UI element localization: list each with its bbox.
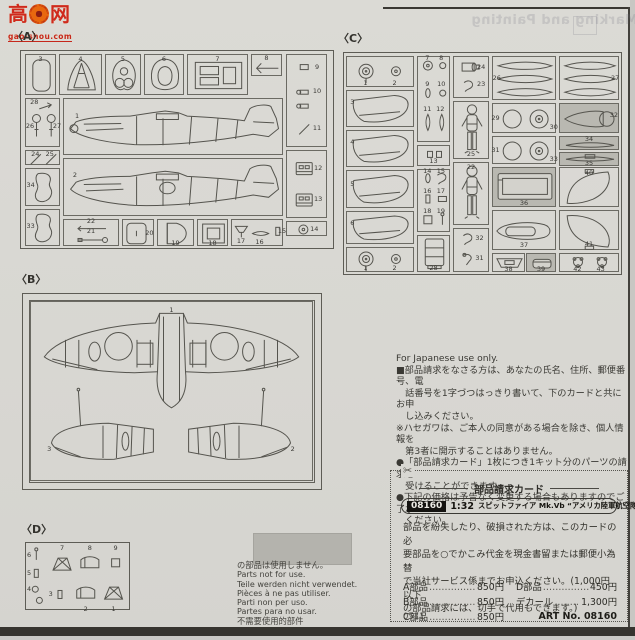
kit-id-badge: 08160 1:32 スピットファイア Mk.Vb “アメリカ陸軍航空隊”: [401, 498, 617, 514]
part-number: 35: [585, 160, 593, 167]
notice-line: ■部品請求をなさる方は、あなたの氏名、住所、郵便番号、電: [396, 365, 630, 388]
part-number: 18: [208, 239, 216, 246]
part-number: 33: [26, 223, 34, 230]
part-box: 2425: [25, 150, 60, 165]
art-number: ART No. 08160: [539, 611, 617, 622]
section-d-label: 〈D〉: [21, 521, 52, 537]
price-value: 1,300円: [581, 594, 617, 608]
price-leader: ……………………………………………: [543, 582, 589, 593]
part-number: 26: [26, 123, 34, 130]
part-box: 171615: [231, 219, 283, 246]
part-number: 19: [171, 239, 179, 246]
part-number: 43: [596, 266, 604, 273]
card-title: 部品請求カード: [391, 481, 627, 496]
price-label: A部品: [403, 579, 428, 593]
part-box: 6: [346, 211, 414, 244]
part-number: 3: [49, 591, 53, 598]
part-number: 5: [27, 570, 31, 577]
part-number: 4: [27, 586, 31, 593]
part-box: 3231: [453, 228, 489, 272]
price-leader: ……………………………………………: [429, 582, 476, 593]
part-number: 25: [46, 150, 54, 157]
unused-line: Parts not for use.: [237, 570, 367, 579]
part-number: 22: [87, 217, 95, 224]
part-number: 14: [423, 168, 431, 175]
part-number: 19: [437, 208, 445, 215]
part-number: 30: [550, 124, 558, 131]
section-b-label: 〈B〉: [16, 271, 46, 287]
price-label: B部品: [403, 594, 428, 608]
part-number: 9: [425, 81, 429, 88]
part-box: 35: [559, 152, 619, 166]
notice-line: 第3者に開示することはありません。: [396, 446, 630, 458]
part-number: 2: [392, 265, 396, 272]
part-box: 2423: [453, 56, 489, 98]
part-box: 4243: [559, 253, 619, 272]
card-body-line: 要部品を○でかこみ代金を現金書留または郵便小為替: [403, 548, 617, 575]
part-number: 18: [423, 208, 431, 215]
part-number: 3: [47, 446, 51, 453]
part-number: 37: [520, 242, 528, 249]
unused-line: Teile werden nicht verwendet.: [237, 580, 367, 589]
part-box: 5: [346, 170, 414, 208]
part-box: 91011: [286, 54, 327, 147]
part-box: 141516171819: [417, 169, 450, 232]
show-through-box: [573, 16, 597, 35]
part-number: 1: [111, 606, 115, 613]
part-number: 7: [60, 545, 64, 552]
price-value: 850円: [477, 579, 504, 593]
part-number: 34: [585, 136, 593, 143]
scan-bed-right: [630, 0, 635, 640]
part-number: 36: [520, 199, 528, 206]
part-number: 41: [585, 241, 593, 248]
part-number: 6: [162, 55, 166, 62]
kit-scale: 1:32: [450, 501, 474, 512]
part-number: 3: [350, 98, 354, 105]
price-leader: ……………………………………………: [554, 597, 580, 608]
scissors-icon: ✂: [401, 464, 414, 477]
parts-request-card: ✂ 部品請求カード 08160 1:32 スピットファイア Mk.Vb “アメリ…: [390, 470, 628, 622]
part-number: 1: [169, 307, 173, 314]
part-box: 34: [559, 136, 619, 150]
part-number: 14: [310, 225, 318, 232]
part-box: 37: [492, 210, 556, 250]
part-number: 38: [504, 265, 512, 272]
part-number: 2: [73, 171, 77, 178]
part-number: 9: [315, 64, 319, 71]
part-box: 6: [144, 54, 184, 95]
part-box: 4: [59, 54, 102, 95]
part-box: 36: [492, 167, 556, 207]
part-box: 32: [559, 103, 619, 133]
part-box: 654789321: [26, 543, 129, 609]
part-number: 22: [467, 163, 475, 170]
price-label: デカール: [516, 594, 553, 608]
part-number: 42: [573, 266, 581, 273]
part-number: 31: [491, 147, 499, 154]
part-number: 24: [31, 150, 39, 157]
part-box: 3: [346, 90, 414, 127]
part-number: 7: [215, 55, 219, 62]
price-leader: ……………………………………………: [429, 597, 476, 608]
part-box: 789101112: [417, 56, 450, 142]
unused-line: の部品は使用しません。: [237, 561, 367, 570]
part-box: 4: [346, 130, 414, 167]
part-number: 2: [84, 606, 88, 613]
part-number: 31: [475, 254, 483, 261]
show-through-text: Marking and Painting: [448, 13, 635, 28]
part-number: 17: [437, 188, 445, 195]
part-box: 39: [526, 253, 556, 272]
part-number: 1: [363, 265, 367, 272]
part-number: 32: [610, 112, 618, 119]
part-number: 7: [425, 55, 429, 62]
notice-line: し込みください。: [396, 411, 630, 423]
instruction-sheet-page: Marking and Painting 高 网 gao-shou.com 〈A…: [0, 0, 635, 640]
part-box: 282627: [25, 98, 60, 147]
part-number: 23: [477, 81, 485, 88]
part-number: 15: [278, 227, 286, 234]
part-number: 12: [314, 165, 322, 172]
part-number: 20: [145, 229, 153, 236]
part-number: 4: [350, 138, 354, 145]
part-number: 8: [439, 55, 443, 62]
unused-line: 不需要使用的部件: [237, 617, 367, 626]
watermark-char-right: 网: [50, 4, 70, 24]
page-edge-top: [383, 7, 630, 9]
part-number: 12: [436, 106, 444, 113]
part-number: 27: [611, 75, 619, 82]
part-number: 27: [53, 123, 61, 130]
part-number: 24: [477, 63, 485, 70]
part-number: 15: [437, 168, 445, 175]
part-box: 1213: [286, 150, 327, 218]
scan-bed-bottom: [0, 636, 635, 640]
sprue-b-diagram: 132: [22, 293, 322, 490]
part-number: 8: [88, 545, 92, 552]
price-value: 450円: [590, 579, 617, 593]
part-number: 10: [437, 81, 445, 88]
part-box: 2221: [63, 219, 119, 246]
part-box: 12: [346, 247, 414, 272]
part-number: 5: [121, 55, 125, 62]
part-box: 13: [417, 145, 450, 166]
gear-icon: [29, 4, 49, 24]
part-number: 28: [30, 99, 38, 106]
notice-line: For Japanese use only.: [396, 353, 630, 365]
part-number: 17: [237, 238, 245, 245]
card-footer: 0511 ART No. 08160: [403, 611, 617, 622]
part-number: 21: [87, 228, 95, 235]
part-box: 3133: [492, 136, 556, 164]
part-number: 4: [78, 55, 82, 62]
part-box: 3: [47, 416, 159, 476]
price-row: A部品……………………………………………850円 D部品…………………………………: [403, 579, 617, 594]
notice-line: 話番号を1字づつはっきり書いて、下のカードと共にお申: [396, 388, 630, 411]
unused-parts-note: の部品は使用しません。 Parts not for use. Teile wer…: [237, 561, 367, 626]
part-number: 40: [585, 169, 593, 176]
sprue-c-diagram: 1234561278910111213141516171819282423252…: [343, 52, 622, 275]
watermark-char-left: 高: [8, 4, 28, 24]
part-box: 41: [559, 210, 619, 250]
part-number: 1: [75, 112, 79, 119]
part-number: 2: [291, 446, 295, 453]
print-serial: 0511: [403, 612, 425, 622]
part-box: 8: [251, 54, 282, 76]
unused-line: Parti non per uso.: [237, 598, 367, 607]
part-box: 5: [105, 54, 141, 95]
part-number: 11: [423, 106, 431, 113]
part-box: 2: [63, 158, 283, 216]
part-box: 38: [492, 253, 525, 272]
part-box: 25: [453, 101, 489, 159]
part-number: 39: [537, 265, 545, 272]
part-number: 11: [313, 125, 321, 132]
part-number: 10: [313, 88, 321, 95]
section-c-label: 〈C〉: [338, 30, 368, 46]
part-box: 7: [187, 54, 248, 95]
kit-name: スピットファイア Mk.Vb “アメリカ陸軍航空隊”: [478, 501, 635, 511]
part-box: 2: [183, 416, 295, 476]
part-number: 13: [314, 195, 322, 202]
part-number: 16: [255, 239, 263, 246]
sprue-a-diagram: 3456789101112131428262724253433122221201…: [20, 50, 334, 249]
part-box: 26: [492, 56, 556, 100]
page-edge-bottom: [0, 627, 635, 636]
part-box: 2930: [492, 103, 556, 133]
part-number: 34: [26, 182, 34, 189]
part-number: 28: [429, 265, 437, 272]
part-box: 20: [122, 219, 154, 246]
part-box: 28: [417, 235, 450, 272]
part-box: 33: [25, 209, 60, 246]
part-box: 14: [286, 221, 327, 236]
part-box: 34: [25, 168, 60, 206]
part-box: 1: [63, 98, 283, 155]
part-box: 22: [453, 162, 489, 225]
card-title-text: 部品請求カード: [474, 481, 544, 496]
card-body-line: 部品を紛失したり、破損された方は、このカードの必: [403, 521, 617, 548]
part-number: 26: [493, 75, 501, 82]
sprue-d-diagram: 654789321: [25, 542, 130, 610]
notice-line: ※ハセガワは、ご本人の同意がある場合を除き、個人情報を: [396, 423, 630, 446]
part-box: 12: [346, 56, 414, 87]
part-box: 40: [559, 167, 619, 207]
part-number: 6: [27, 552, 31, 559]
part-number: 2: [392, 79, 396, 86]
part-number: 33: [550, 156, 558, 163]
price-row: B部品……………………………………………850円 デカール………………………………: [403, 594, 617, 609]
part-number: 8: [264, 55, 268, 62]
part-number: 25: [467, 151, 475, 158]
part-number: 1: [363, 79, 367, 86]
part-number: 5: [350, 180, 354, 187]
part-number: 3: [38, 56, 42, 63]
unused-line: Pièces à ne pas utiliser.: [237, 589, 367, 598]
part-number: 16: [423, 188, 431, 195]
price-value: 850円: [477, 594, 504, 608]
part-box: 27: [559, 56, 619, 100]
part-number: 32: [475, 235, 483, 242]
part-number: 6: [350, 220, 354, 227]
part-number: 29: [491, 115, 499, 122]
price-label: D部品: [516, 579, 542, 593]
part-box: 3: [25, 54, 56, 95]
part-box: 18: [197, 219, 228, 246]
part-number: 13: [429, 158, 437, 165]
part-box: 19: [157, 219, 194, 246]
section-a-label: 〈A〉: [12, 28, 43, 44]
kit-number-chip: 08160: [407, 501, 446, 512]
part-number: 9: [114, 545, 118, 552]
